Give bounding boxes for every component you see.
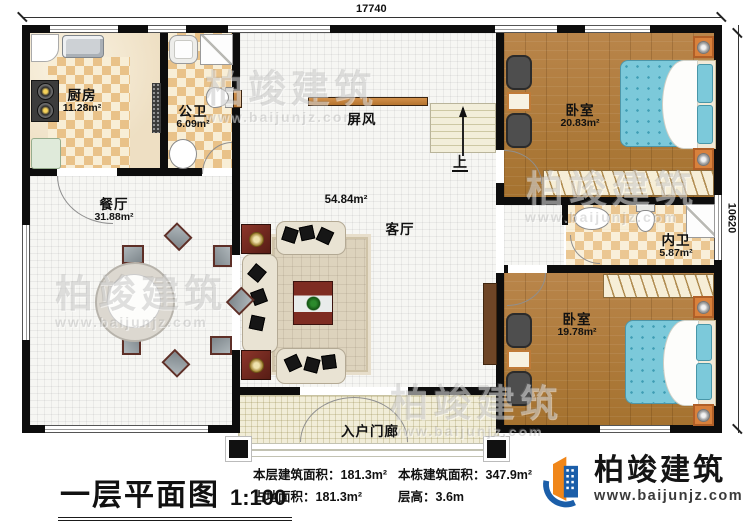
stat-row: 本层建筑面积：181.3m² bbox=[253, 464, 387, 486]
top-dimension-line bbox=[22, 17, 722, 18]
porch-step bbox=[225, 450, 510, 457]
company-name: 柏竣建筑 bbox=[594, 456, 743, 486]
side-table bbox=[241, 224, 271, 254]
bed-pillow bbox=[697, 105, 713, 144]
stairs-arrow bbox=[459, 106, 467, 117]
room-label-bedroom-bottom: 卧室19.78m² bbox=[557, 312, 596, 339]
stat-row: 本栋建筑面积：347.9m² bbox=[398, 464, 532, 486]
stove-burner bbox=[37, 83, 54, 100]
room-label-bedroom-top: 卧室20.83m² bbox=[560, 103, 599, 130]
nightstand-lamp bbox=[697, 301, 710, 314]
wall-living-bedroom-top bbox=[496, 33, 504, 150]
sofa-pillow bbox=[299, 225, 316, 242]
nightstand-lamp bbox=[697, 153, 710, 166]
bedroom-chair bbox=[506, 313, 532, 348]
dining-table-top bbox=[107, 274, 161, 328]
right-dimension-line bbox=[738, 25, 739, 433]
wall-kitchen-bath bbox=[160, 33, 168, 175]
stat-row: 层高：3.6m bbox=[398, 486, 532, 508]
window bbox=[600, 425, 670, 433]
window bbox=[148, 25, 186, 33]
company-logo-icon bbox=[538, 452, 588, 508]
wall-hall-bedroombottom bbox=[547, 265, 722, 273]
living-area-label: 54.84m² bbox=[325, 194, 368, 207]
stove-burner bbox=[37, 102, 54, 119]
table-medallion bbox=[249, 358, 264, 373]
bath-sink bbox=[169, 139, 197, 169]
bed-pillow bbox=[696, 324, 712, 361]
room-label-screen: 屏风 bbox=[348, 112, 377, 127]
right-dimension-label: 10620 bbox=[725, 201, 737, 236]
table-medallion bbox=[249, 232, 264, 247]
window bbox=[495, 25, 557, 33]
inner-bath-sink bbox=[574, 207, 610, 230]
company-logo-text: 柏竣建筑 www.baijunjz.com bbox=[594, 456, 743, 504]
bedroom-chair bbox=[506, 371, 532, 406]
company-logo: 柏竣建筑 www.baijunjz.com bbox=[538, 452, 743, 508]
wall-living-bedroom-mid bbox=[496, 183, 504, 205]
bedroom-side-table bbox=[507, 92, 531, 111]
bed-pillow bbox=[696, 363, 712, 400]
room-label-dining: 餐厅31.88m² bbox=[94, 197, 133, 224]
window bbox=[45, 425, 208, 433]
hallway-floor bbox=[504, 205, 564, 265]
stat-row: 占地面积：181.3m² bbox=[253, 486, 387, 508]
wall-kitchen-dining-right bbox=[117, 168, 202, 176]
wardrobe bbox=[543, 170, 714, 196]
wall-innerbath-stub bbox=[562, 205, 568, 225]
room-label-kitchen: 厨房11.28m² bbox=[63, 88, 102, 115]
plant bbox=[306, 296, 321, 311]
stats-column-2: 本栋建筑面积：347.9m² 层高：3.6m bbox=[398, 464, 532, 508]
stairs-up-label: 上 bbox=[452, 155, 468, 172]
wall-living-bedroom-bottom bbox=[496, 273, 504, 433]
porch-column bbox=[229, 440, 248, 458]
porch-step bbox=[225, 443, 510, 450]
entry-cabinet bbox=[233, 90, 242, 108]
wall-stub bbox=[504, 265, 508, 273]
nightstand bbox=[693, 148, 714, 170]
kitchen-stove bbox=[31, 80, 59, 122]
porch-column bbox=[487, 440, 506, 458]
bed-pillow bbox=[697, 64, 713, 103]
nightstand-lamp bbox=[697, 409, 710, 422]
nightstand-lamp bbox=[697, 41, 710, 54]
kitchen-sink bbox=[62, 35, 104, 58]
nightstand bbox=[693, 36, 714, 58]
screen-partition bbox=[308, 97, 428, 106]
window bbox=[585, 25, 650, 33]
side-table bbox=[241, 350, 271, 380]
window bbox=[22, 225, 30, 340]
nightstand bbox=[693, 404, 714, 426]
dining-chair bbox=[210, 336, 232, 355]
sofa-pillow bbox=[321, 354, 337, 370]
dining-chair bbox=[213, 245, 232, 267]
window bbox=[50, 25, 118, 33]
wall-kitchen-dining-left bbox=[22, 168, 57, 176]
bed-duvet bbox=[662, 60, 698, 149]
room-label-living: 客厅 bbox=[386, 222, 415, 237]
company-url: www.baijunjz.com bbox=[594, 488, 743, 504]
room-label-public-bath: 公卫6.09m² bbox=[176, 104, 209, 131]
coffee-table bbox=[293, 281, 333, 325]
floorplan-canvas: 17740 10620 bbox=[0, 0, 750, 523]
window bbox=[228, 25, 330, 33]
tv-cabinet bbox=[483, 283, 497, 365]
plan-title-text: 一层平面图 bbox=[60, 479, 220, 512]
wall-dining-living-lower bbox=[232, 350, 240, 433]
window bbox=[714, 195, 722, 260]
kitchen-corner-cabinet bbox=[31, 34, 59, 62]
fridge bbox=[31, 138, 61, 169]
bedroom-chair bbox=[506, 113, 532, 148]
dining-set bbox=[78, 245, 188, 355]
bed-duvet bbox=[663, 320, 699, 406]
nightstand bbox=[693, 296, 714, 318]
top-dimension-label: 17740 bbox=[352, 3, 391, 15]
room-label-porch: 入户门廊 bbox=[341, 424, 399, 439]
stats-column-1: 本层建筑面积：181.3m² 占地面积：181.3m² bbox=[253, 464, 387, 508]
room-label-inner-bath: 内卫5.87m² bbox=[659, 233, 692, 260]
wardrobe bbox=[603, 274, 714, 298]
shower bbox=[200, 34, 233, 65]
sofa-pillow bbox=[249, 315, 266, 332]
bedroom-chair bbox=[506, 55, 532, 90]
kitchen-vent bbox=[152, 83, 161, 133]
wall-living-bottom-right bbox=[408, 387, 505, 395]
wall-living-bottom-left bbox=[232, 387, 300, 395]
bathtub bbox=[169, 35, 198, 64]
wall-dining-living-upper bbox=[232, 180, 240, 255]
bedroom-side-table bbox=[507, 350, 531, 369]
